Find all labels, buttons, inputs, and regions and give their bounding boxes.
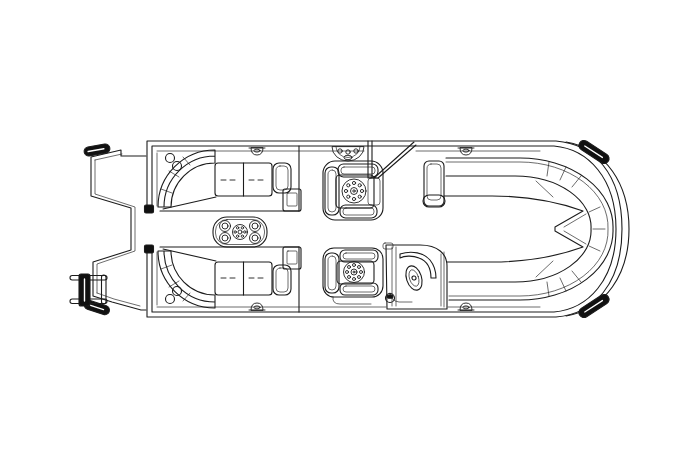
lounge-front-edge bbox=[160, 197, 299, 211]
table-pedestal-mount bbox=[233, 225, 248, 240]
chair-armrest bbox=[340, 250, 378, 262]
console-top-step bbox=[383, 243, 393, 249]
boarding-ladder bbox=[70, 274, 107, 306]
corner-tray-inner bbox=[287, 251, 297, 264]
lounge-backrest-band bbox=[158, 150, 215, 207]
helm-console bbox=[383, 243, 447, 309]
corner-tray-inner bbox=[287, 193, 297, 206]
cocktail-table bbox=[213, 217, 267, 247]
line-work bbox=[70, 139, 629, 320]
pontoon-floorplan-canvas bbox=[0, 0, 698, 466]
chair-armrest bbox=[340, 205, 377, 218]
lounge-front-edge bbox=[160, 247, 299, 261]
chair-backrest bbox=[325, 167, 339, 215]
cup-holder-icon bbox=[166, 295, 175, 304]
stern-notch-inner bbox=[564, 214, 586, 244]
cup-holder-icon bbox=[173, 162, 182, 171]
stern-band-ticks bbox=[547, 162, 605, 296]
cleat-icon bbox=[249, 148, 265, 155]
gate-step-pad bbox=[332, 147, 364, 161]
stern-seating bbox=[423, 139, 613, 320]
bow-gate-hinge-top bbox=[145, 205, 154, 213]
table-top-inner bbox=[216, 220, 265, 245]
stern-backrest-band-inner bbox=[446, 176, 591, 282]
table-cup-holders bbox=[220, 221, 261, 244]
stern-seat-front-edge bbox=[444, 196, 583, 262]
cleat-icon bbox=[249, 303, 265, 310]
pontoon-floorplan-drawing bbox=[0, 0, 698, 466]
corner-tray bbox=[283, 189, 301, 211]
co-captain-chair bbox=[323, 161, 383, 220]
port-bow-lounge bbox=[158, 146, 301, 211]
console-body bbox=[386, 245, 447, 309]
bow-gate-hinge-bottom bbox=[145, 245, 154, 253]
stern-backrest-band-outer bbox=[446, 158, 613, 300]
chair-footrest bbox=[333, 297, 371, 304]
fence-outer bbox=[147, 141, 622, 317]
cleat-icon bbox=[458, 303, 474, 310]
corner-tray bbox=[283, 247, 301, 269]
fence-inner bbox=[152, 146, 616, 312]
bow-corner-cap bbox=[83, 143, 110, 156]
starboard-bow-lounge bbox=[158, 247, 301, 312]
chair-swivel-base bbox=[342, 179, 366, 203]
cushion-corner-seams bbox=[536, 181, 553, 277]
stern-backrest-band-mid bbox=[446, 162, 608, 296]
steering-wheel-icon bbox=[403, 264, 425, 292]
chair-armrest bbox=[340, 283, 378, 295]
bow-platform bbox=[70, 143, 146, 315]
lounge-armrest-inner bbox=[276, 166, 288, 190]
helm-chair bbox=[323, 248, 383, 304]
cleat-icon bbox=[458, 148, 474, 155]
bow-platform-outline bbox=[91, 150, 146, 310]
lounge-armrest-inner bbox=[276, 268, 288, 292]
table-top bbox=[213, 217, 267, 247]
stern-corner-cap bbox=[577, 293, 611, 320]
stern-corner-cap bbox=[577, 139, 611, 166]
chair-swivel-base bbox=[344, 262, 365, 283]
lounge-backrest-band bbox=[158, 251, 215, 308]
cup-holder-icon bbox=[166, 154, 175, 163]
